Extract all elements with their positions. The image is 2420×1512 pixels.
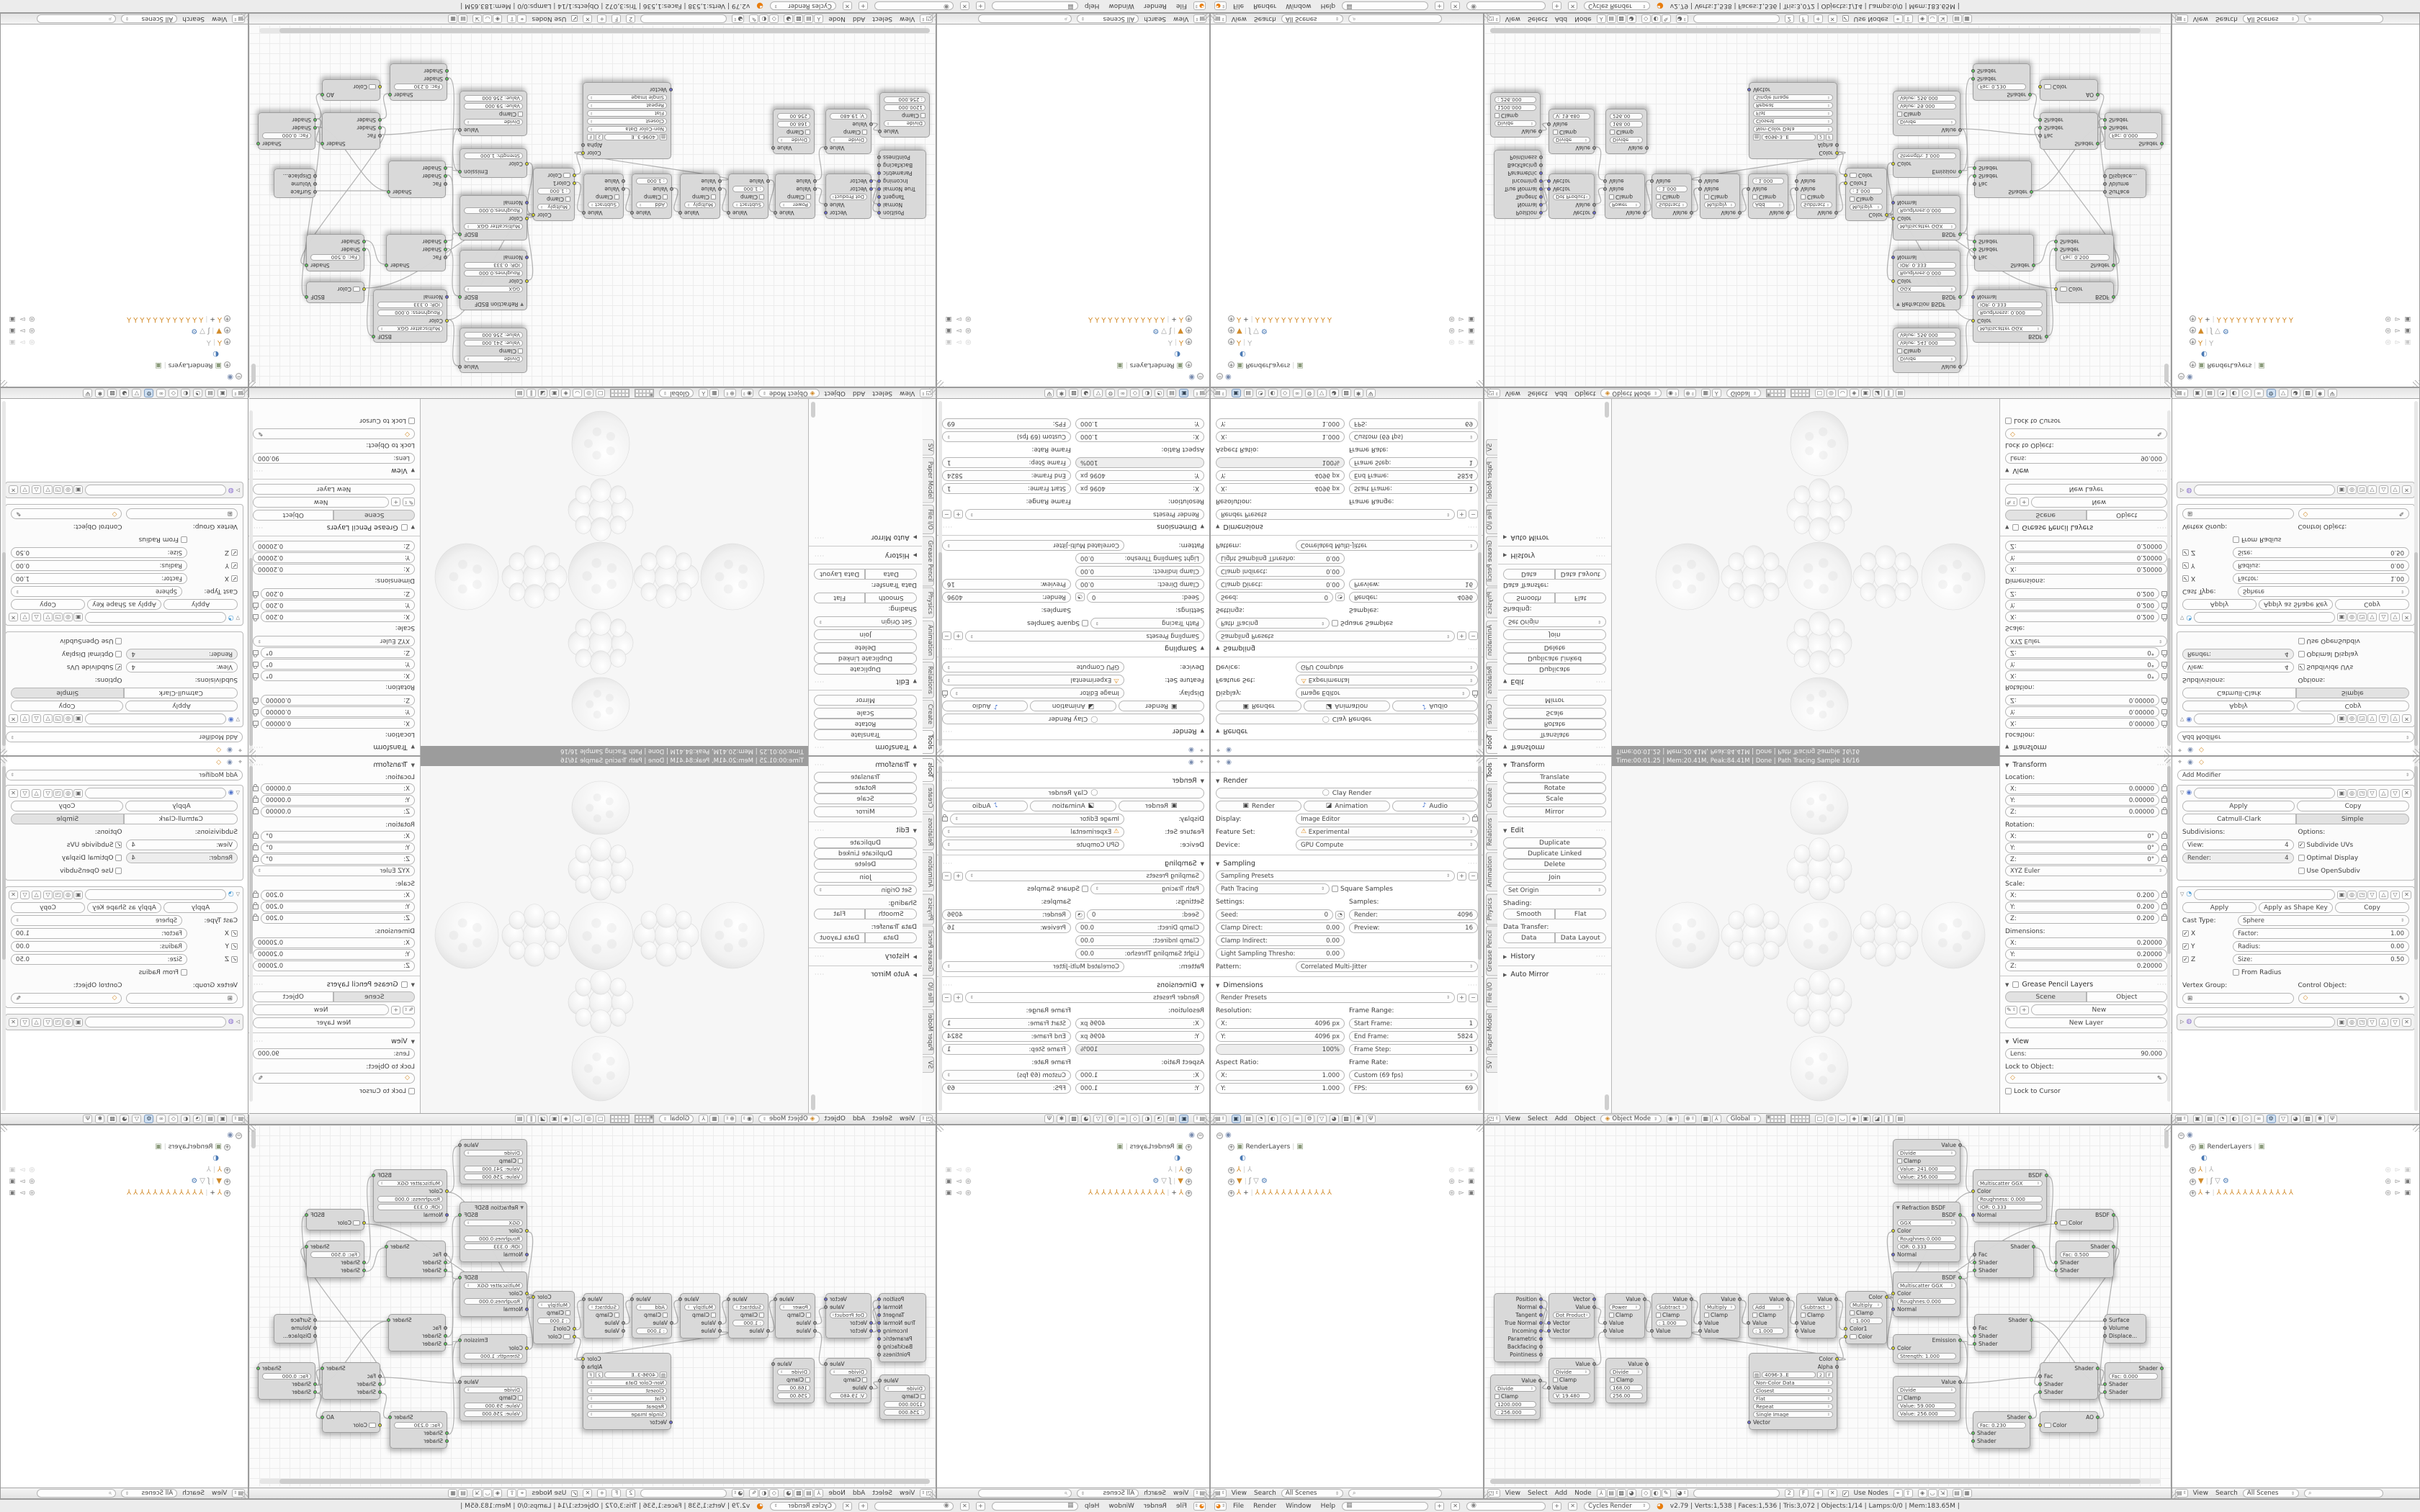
editor-type-select[interactable]: ▤: [1193, 14, 1206, 23]
color-swatch[interactable]: [353, 287, 360, 292]
input-socket[interactable]: [1971, 1439, 1975, 1443]
context-icon[interactable]: ◉: [227, 746, 233, 752]
layer-toggle[interactable]: [650, 393, 653, 397]
node-value-field[interactable]: Value: 256.000: [464, 1174, 523, 1180]
input-socket[interactable]: [525, 1292, 529, 1295]
context-icon[interactable]: ◉: [1226, 746, 1232, 752]
outliner-search-field[interactable]: ⌕: [1348, 1489, 1442, 1498]
menu-view[interactable]: View: [900, 390, 915, 397]
select-toggle[interactable]: ▻: [2396, 338, 2401, 346]
layer-toggle[interactable]: [614, 1119, 618, 1122]
clamp-indirect-field[interactable]: Clamp Indirect:0.00: [1216, 935, 1345, 946]
delete-modifier-button[interactable]: ✕: [2402, 613, 2411, 622]
output-socket[interactable]: [581, 1357, 585, 1361]
input-socket[interactable]: [2103, 118, 2107, 122]
editor-type-select[interactable]: ▤: [1214, 1115, 1227, 1123]
node-dropdown[interactable]: Subtract: [732, 1304, 764, 1310]
node-vscrollbar[interactable]: [251, 1130, 256, 1148]
node-header-icon-hdr_ics4-1[interactable]: ◡: [483, 1489, 492, 1498]
node-dropdown[interactable]: Multiply: [537, 1302, 570, 1308]
loc-x-field[interactable]: X:0.00000: [2005, 783, 2159, 794]
shelf-tab-sv[interactable]: SV: [923, 439, 935, 456]
editmode-toggle-icon[interactable]: ▽: [43, 715, 53, 724]
data-layout-button[interactable]: Data Layout: [814, 932, 866, 943]
editor-type-select[interactable]: ▤: [2175, 389, 2188, 397]
menu-help[interactable]: Help: [1321, 1503, 1336, 1510]
hide-toggle[interactable]: ◎: [2385, 1166, 2391, 1174]
end-frame-field[interactable]: End Frame:5824: [942, 470, 1071, 481]
shader-node[interactable]: VectorValueDot ProductVectorVector: [1549, 174, 1595, 219]
fps-field[interactable]: FPS:69: [942, 418, 1071, 429]
node-header-icon-hdr_ics2-1[interactable]: ◐: [1652, 1489, 1661, 1498]
add-layout-button[interactable]: +: [976, 1502, 985, 1511]
panel-transform-n[interactable]: Transform····: [2005, 742, 2167, 752]
node-dropdown[interactable]: Single Image: [1753, 94, 1833, 101]
node-value-field[interactable]: V: 19.480: [1553, 1392, 1590, 1399]
expand-icon[interactable]: +: [2190, 1179, 2196, 1185]
lock-object-field[interactable]: ◇✎: [253, 1073, 415, 1084]
shader-node[interactable]: BSDFMultiscatter GGXColorRoughness: 0.00…: [373, 1169, 447, 1223]
node-value-field[interactable]: : 1.000: [732, 1320, 764, 1326]
output-socket[interactable]: [458, 295, 462, 299]
subdiv-render-field[interactable]: Render:4: [2182, 649, 2294, 660]
output-socket[interactable]: [877, 195, 881, 199]
properties-tab-0[interactable]: ▣: [1232, 389, 1241, 397]
collapse-icon[interactable]: −: [1197, 374, 1204, 380]
node-value-field[interactable]: 256.00: [777, 113, 810, 120]
output-socket[interactable]: [256, 1367, 260, 1370]
lock-icon[interactable]: [2161, 904, 2167, 909]
properties-tab-9[interactable]: ▩: [1342, 1115, 1351, 1123]
lock-object-field[interactable]: ◇✎: [2005, 1073, 2167, 1084]
node-value-field[interactable]: Roughnes:0.000: [464, 207, 523, 214]
input-socket[interactable]: [1795, 1329, 1798, 1333]
editor-type-select[interactable]: ▤: [2175, 14, 2188, 23]
lock-cursor-checkbox[interactable]: [408, 1088, 415, 1094]
dim-z-field[interactable]: Z:0.20000: [2005, 960, 2167, 971]
output-socket[interactable]: [877, 1305, 881, 1309]
delete-button[interactable]: Delete: [1503, 859, 1606, 870]
output-socket[interactable]: [877, 1297, 881, 1301]
gp-new-layer-button[interactable]: New Layer: [2005, 1017, 2167, 1028]
shader-node[interactable]: Refraction BSDFBSDFGGXColorRoughnes:0.00…: [460, 250, 527, 310]
layer-toggle[interactable]: [635, 1119, 639, 1122]
menu-view[interactable]: View: [1232, 1490, 1247, 1497]
input-socket[interactable]: [1973, 174, 1976, 178]
output-socket[interactable]: [1592, 146, 1596, 150]
menu-render[interactable]: Render: [1253, 3, 1276, 10]
node-header-icon-hdr_ics1-2[interactable]: ▩: [794, 14, 803, 23]
factor-field[interactable]: Factor:1.00: [2233, 573, 2409, 584]
res-x-field[interactable]: X:4096 px: [1075, 483, 1204, 494]
node-value-field[interactable]: 1200.000: [1494, 104, 1536, 111]
output-socket[interactable]: [877, 171, 881, 175]
collapse-icon[interactable]: −: [236, 374, 242, 380]
data-layout-button[interactable]: Data Layout: [1555, 932, 1607, 943]
shader-node[interactable]: ValueSubtractClamp: 1.000Value: [1652, 1293, 1692, 1338]
factor-field[interactable]: Factor:1.00: [11, 573, 187, 584]
pin-icon[interactable]: ⌖: [238, 746, 242, 752]
output-socket[interactable]: [1958, 1380, 1962, 1384]
layer-toggle[interactable]: [646, 1119, 650, 1122]
preset-add-button[interactable]: +: [1457, 510, 1466, 519]
node-header-icon-hdr_ics4-2[interactable]: ⇲: [472, 14, 482, 23]
hide-toggle[interactable]: ◎: [29, 1178, 35, 1185]
output-socket[interactable]: [2096, 1367, 2099, 1370]
render-samples-field[interactable]: Render:4096: [942, 592, 1071, 603]
properties-tab-9[interactable]: ▩: [2303, 1115, 2313, 1123]
frame-rate-select[interactable]: Custom (69 fps): [942, 431, 1071, 442]
node-checkbox[interactable]: [1897, 348, 1902, 354]
editor-type-select[interactable]: ◳: [1487, 1489, 1500, 1498]
layer-toggle[interactable]: [618, 1119, 622, 1122]
output-socket[interactable]: [878, 130, 882, 133]
properties-tab-1[interactable]: ▤: [1167, 389, 1176, 397]
layer-toggle[interactable]: [642, 1119, 646, 1122]
properties-tab-3[interactable]: ◐: [1142, 1115, 1152, 1123]
frame-step-field[interactable]: Frame Step:1: [942, 457, 1071, 468]
output-socket[interactable]: [2030, 190, 2033, 194]
input-socket[interactable]: [670, 187, 673, 191]
node-value-field[interactable]: : 1.000: [636, 178, 668, 184]
output-socket[interactable]: [305, 264, 308, 267]
properties-tab-1[interactable]: ▤: [1167, 1115, 1176, 1123]
layer-toggle[interactable]: [611, 390, 614, 393]
render-toggle[interactable]: ▣: [9, 327, 16, 334]
header-icon-1[interactable]: ◎: [1827, 389, 1836, 397]
clamp-direct-field[interactable]: Clamp Direct:0.00: [1216, 579, 1345, 590]
catmull-clark-button[interactable]: Catmull-Clark: [2182, 688, 2296, 698]
layer-toggle[interactable]: [642, 393, 646, 397]
layer-toggle[interactable]: [635, 390, 639, 393]
input-socket[interactable]: [670, 1321, 673, 1325]
unlink-material-button[interactable]: ✕: [1828, 14, 1837, 23]
node-value-field[interactable]: Fac: 0.000: [2109, 132, 2158, 139]
users-count[interactable]: 2: [626, 1489, 635, 1498]
aspect-y-field[interactable]: Y:1.000: [1216, 418, 1345, 429]
optimal-display-checkbox[interactable]: [116, 855, 122, 861]
cast-y-checkbox[interactable]: ✓: [2182, 943, 2189, 950]
apply-button[interactable]: Apply: [2182, 902, 2257, 913]
viewport[interactable]: Time:00:01.25 | Mem:20.41M, Peak:84.41M …: [1612, 757, 1999, 1115]
shader-node[interactable]: SurfaceVolumeDisplace...: [2105, 1314, 2146, 1344]
integrator-select[interactable]: Path Tracing: [1090, 883, 1204, 894]
input-socket[interactable]: [1973, 248, 1976, 251]
scale-x-field[interactable]: X:0.200: [261, 890, 415, 901]
input-socket[interactable]: [869, 1329, 873, 1333]
device-select[interactable]: GPU Compute: [1296, 840, 1478, 850]
translate-button[interactable]: Translate: [814, 729, 917, 740]
modifier-name-field[interactable]: [85, 485, 226, 495]
duplicate-linked-button[interactable]: Duplicate Linked: [1503, 653, 1606, 664]
node-value-field[interactable]: Value: 59.000: [464, 103, 523, 109]
node-dropdown[interactable]: Multiscatter GGX: [1977, 1180, 2043, 1187]
gp-object-button[interactable]: Object: [253, 510, 334, 521]
hide-toggle[interactable]: ◎: [1449, 315, 1455, 323]
node-checkbox[interactable]: [806, 1313, 811, 1318]
subdivide-uvs-checkbox[interactable]: ✓: [2298, 664, 2305, 670]
shader-node[interactable]: ValueDivideClamp1200.000: 256.000: [1490, 1374, 1541, 1420]
node-dropdown[interactable]: Multiply: [537, 204, 570, 210]
node-value-field[interactable]: Fac: 0.500: [310, 254, 360, 261]
outliner-row[interactable]: +⅄+|⅄⅄⅄⅄⅄⅄⅄⅄⅄⅄⅄⅄◎▻▣: [6, 1187, 242, 1199]
output-socket[interactable]: [630, 211, 634, 215]
rotation-mode-select[interactable]: XYZ Euler: [253, 636, 415, 647]
radius-field[interactable]: Radius:0.00: [11, 941, 187, 952]
shader-node[interactable]: ShaderFac: 0.000ShaderShader: [258, 112, 315, 150]
node-dropdown[interactable]: Divide: [777, 137, 810, 143]
output-socket[interactable]: [1539, 156, 1543, 159]
cast-y-checkbox[interactable]: ✓: [2182, 562, 2189, 569]
size-field[interactable]: Size:0.50: [11, 954, 187, 965]
output-socket[interactable]: [1539, 1337, 1543, 1341]
opensubdiv-checkbox[interactable]: [116, 868, 122, 874]
node-header-icon-hdr_ics1-0[interactable]: ⅄: [1597, 1489, 1606, 1498]
output-socket[interactable]: [1834, 211, 1838, 215]
render-button[interactable]: ▣Render: [1216, 701, 1301, 711]
properties-tab-9[interactable]: ▩: [1069, 1115, 1078, 1123]
node-value-field[interactable]: Roughnes:0.000: [1897, 270, 1956, 276]
outliner-row[interactable]: +▼|ʃ▽⚙◎▻▣: [943, 1176, 1204, 1187]
header-icon-3[interactable]: ◈: [1850, 1115, 1859, 1123]
shelf-tab-relations[interactable]: Relations: [923, 662, 935, 698]
select-toggle[interactable]: ▻: [20, 338, 25, 346]
expand-icon[interactable]: +: [1186, 339, 1192, 346]
outliner-row[interactable]: +▼|ʃ▽⚙◎▻▣: [1216, 1176, 1477, 1187]
output-socket[interactable]: [774, 1297, 777, 1301]
expand-icon[interactable]: +: [1186, 1144, 1192, 1151]
menu-view[interactable]: View: [1173, 1490, 1188, 1497]
expand-icon[interactable]: +: [1228, 1190, 1234, 1197]
flat-button[interactable]: Flat: [1555, 909, 1607, 919]
viewport-toggle-icon[interactable]: ◳: [2357, 789, 2367, 798]
preview-samples-field[interactable]: Preview:16: [1349, 579, 1478, 590]
editor-type-select[interactable]: ▤: [1193, 1115, 1206, 1123]
unlink-material-button[interactable]: ✕: [1828, 1489, 1837, 1498]
start-frame-field[interactable]: Start Frame:1: [942, 483, 1071, 494]
input-socket[interactable]: [1891, 162, 1895, 166]
node-value-field[interactable]: Roughness: 0.000: [1977, 1196, 2043, 1202]
node-dropdown[interactable]: Divide: [1897, 119, 1956, 125]
node-dropdown[interactable]: Multiscatter GGX: [464, 1282, 523, 1289]
node-checkbox[interactable]: [1897, 1158, 1902, 1164]
editmode-toggle-icon[interactable]: ▽: [2367, 486, 2377, 495]
screen-layout-field[interactable]: ▦: [1342, 2, 1428, 11]
node-dropdown[interactable]: GGX: [464, 286, 523, 292]
dim-x-field[interactable]: X:0.20000: [2005, 564, 2167, 575]
flat-button[interactable]: Flat: [814, 909, 866, 919]
eye-toggle-icon[interactable]: ◎: [2347, 486, 2357, 495]
properties-tab-10[interactable]: ✱: [95, 1115, 104, 1123]
node-checkbox[interactable]: [614, 194, 619, 199]
shader-node[interactable]: ValueDivideClampValueV: 19.480: [825, 1358, 871, 1403]
input-socket[interactable]: [2103, 174, 2107, 178]
node-value-field[interactable]: : 1.000: [1850, 188, 1883, 194]
node-header-icon-hdr_ics3-0[interactable]: ⌖: [1894, 14, 1903, 23]
render-toggle[interactable]: ▣: [9, 1166, 16, 1174]
lock-icon[interactable]: [942, 690, 948, 696]
cast-y-checkbox[interactable]: ✓: [231, 943, 238, 950]
shelf-tab-grease-pencil[interactable]: Grease Pencil: [1486, 536, 1497, 586]
input-socket[interactable]: [869, 179, 873, 183]
render-toggle[interactable]: ▣: [1468, 315, 1474, 323]
outliner-search-field[interactable]: ⌕: [1348, 14, 1442, 23]
properties-tab-8[interactable]: ◕: [1081, 1115, 1090, 1123]
from-radius-checkbox[interactable]: [181, 969, 187, 976]
render-engine-select[interactable]: Cycles Render: [770, 2, 836, 11]
header-icon-6[interactable]: ‖: [1884, 389, 1894, 397]
node-value-field[interactable]: 168.00: [1610, 121, 1643, 127]
panel-dimensions[interactable]: Dimensions····: [942, 981, 1204, 990]
outliner-row[interactable]: +⅄+|⅄⅄⅄⅄⅄⅄⅄⅄⅄⅄⅄⅄◎▻▣: [6, 313, 242, 325]
image-datablock-field[interactable]: 4096-3..E: [604, 1372, 658, 1378]
properties-tab-8[interactable]: ◕: [2291, 1115, 2300, 1123]
render-toggle[interactable]: ▣: [9, 1178, 16, 1185]
loc-y-field[interactable]: Y:0.00000: [2005, 795, 2159, 806]
subdiv-render-field[interactable]: Render:4: [127, 852, 238, 863]
layer-toggle[interactable]: [618, 393, 622, 397]
render-toggle[interactable]: ▣: [2404, 315, 2411, 323]
shelf-tab-tools[interactable]: Tools: [1486, 730, 1497, 754]
hide-toggle[interactable]: ◎: [29, 315, 35, 323]
image-fake-user[interactable]: F: [587, 1372, 594, 1378]
scale-z-field[interactable]: Z:0.200: [261, 588, 415, 599]
outliner-row[interactable]: +▣RenderLayers|▣: [2178, 1141, 2414, 1153]
output-socket[interactable]: [1539, 1353, 1543, 1356]
input-socket[interactable]: [2054, 240, 2058, 243]
properties-tab-5[interactable]: ∞: [156, 389, 166, 397]
editor-type-select[interactable]: ▤: [232, 1489, 245, 1498]
header-icon-0[interactable]: ▢: [1815, 389, 1824, 397]
cast-type-select[interactable]: Sphere: [11, 586, 182, 597]
render-presets[interactable]: Render Presets: [965, 509, 1204, 520]
node-dropdown[interactable]: Divide: [464, 356, 523, 362]
node-checkbox[interactable]: [1752, 194, 1757, 199]
viewport-toggle-icon[interactable]: ◳: [2357, 1018, 2367, 1027]
outliner-row[interactable]: +⅄+|⅄⅄⅄⅄⅄⅄⅄⅄⅄⅄⅄⅄◎▻▣: [1216, 313, 1477, 325]
header-icon-1[interactable]: ◎: [584, 1115, 593, 1123]
panel-view[interactable]: View····: [253, 1037, 415, 1046]
panel-sampling[interactable]: Sampling····: [942, 859, 1204, 868]
square-samples-checkbox[interactable]: [1332, 886, 1338, 892]
select-toggle[interactable]: ▻: [1459, 327, 1464, 334]
scrollbar[interactable]: [2, 759, 6, 1111]
eye-toggle-icon[interactable]: ◎: [2347, 1018, 2357, 1027]
select-toggle[interactable]: ▻: [1459, 338, 1464, 346]
input-socket[interactable]: [1973, 1253, 1976, 1256]
input-socket[interactable]: [378, 85, 382, 89]
output-socket[interactable]: [1539, 1313, 1543, 1317]
render-toggle[interactable]: ▣: [2404, 1166, 2411, 1174]
pattern-select[interactable]: Correlated Multi-Jitter: [1296, 961, 1478, 972]
render-toggle-icon[interactable]: ▣: [73, 789, 83, 798]
frame-step-field[interactable]: Frame Step:1: [942, 1044, 1071, 1055]
node-checkbox[interactable]: [806, 194, 811, 199]
render-toggle-icon[interactable]: ▣: [73, 486, 83, 495]
scene-field[interactable]: ◉: [1466, 1502, 1546, 1511]
expand-icon[interactable]: +: [224, 1144, 230, 1151]
delete-layout-button[interactable]: ✕: [1451, 1502, 1460, 1511]
opensubdiv-checkbox[interactable]: [116, 638, 122, 644]
lock-icon[interactable]: [2161, 650, 2167, 655]
display-mode-select[interactable]: All Scenes: [121, 1489, 177, 1498]
properties-tab-4[interactable]: ◇: [169, 389, 178, 397]
properties-tab-1[interactable]: ▤: [2205, 1115, 2215, 1123]
properties-tab-10[interactable]: ✱: [1057, 1115, 1066, 1123]
lock-icon[interactable]: [253, 916, 259, 921]
expand-icon[interactable]: +: [1186, 328, 1192, 334]
use-nodes-checkbox[interactable]: ✓: [571, 16, 578, 22]
menu-help[interactable]: Help: [1085, 1503, 1100, 1510]
properties-tab-9[interactable]: ▩: [1069, 389, 1078, 397]
loc-z-field[interactable]: Z:0.00000: [2005, 806, 2159, 817]
properties-tab-8[interactable]: ◕: [1330, 389, 1339, 397]
pivot-select[interactable]: ⊕: [1684, 389, 1696, 397]
output-socket[interactable]: [1539, 1345, 1543, 1349]
input-socket[interactable]: [2054, 248, 2058, 251]
input-socket[interactable]: [313, 118, 317, 122]
node-value-field[interactable]: : 1.000: [537, 188, 570, 194]
node-dropdown[interactable]: Dot Product: [830, 1312, 867, 1318]
input-socket[interactable]: [378, 1390, 382, 1394]
delete-scene-button[interactable]: ✕: [1568, 2, 1577, 11]
properties-tab-3[interactable]: ◐: [181, 389, 190, 397]
editmode-toggle-icon[interactable]: ▽: [43, 1018, 53, 1027]
delete-modifier-button[interactable]: ✕: [9, 789, 18, 798]
input-socket[interactable]: [525, 201, 529, 204]
manipulator-icon[interactable]: ▦: [709, 389, 719, 397]
scale-y-field[interactable]: Y:0.200: [2005, 901, 2159, 912]
node-header-icon-hdr_ics3-1[interactable]: ⇧: [1904, 14, 1913, 23]
duplicate-linked-button[interactable]: Duplicate Linked: [814, 848, 917, 859]
hide-toggle[interactable]: ◎: [29, 327, 35, 334]
scale-x-field[interactable]: X:0.200: [2005, 890, 2159, 901]
output-socket[interactable]: [532, 1295, 535, 1299]
menu-add[interactable]: Add: [1555, 390, 1567, 397]
node-value-field[interactable]: Roughnes:0.000: [464, 1236, 523, 1242]
properties-tab-3[interactable]: ◐: [1268, 389, 1278, 397]
input-socket[interactable]: [1973, 1261, 1976, 1264]
smooth-button[interactable]: Smooth: [866, 909, 918, 919]
input-socket[interactable]: [525, 1308, 529, 1311]
node-value-field[interactable]: : 256.000: [1494, 96, 1536, 103]
output-socket[interactable]: [824, 211, 828, 215]
node-header-icon-hdr_ics4-2[interactable]: ⇲: [472, 1489, 482, 1498]
shader-node[interactable]: ShaderFac: 0.500ShaderShader: [306, 234, 364, 271]
move-up-button[interactable]: △: [32, 613, 41, 622]
output-socket[interactable]: [877, 1353, 881, 1356]
shader-node[interactable]: Refraction BSDFBSDFGGXColorRoughnes:0.00…: [1893, 250, 1960, 310]
size-field[interactable]: Size:0.50: [2233, 954, 2409, 965]
panel-auto-mirror[interactable]: Auto Mirror····: [1503, 533, 1606, 542]
move-down-button[interactable]: ▽: [2390, 789, 2400, 798]
input-socket[interactable]: [1747, 187, 1750, 191]
render-presets[interactable]: Render Presets: [1216, 992, 1455, 1003]
lock-icon[interactable]: [2161, 603, 2167, 608]
outliner-row[interactable]: +⅄+|⅄⅄⅄⅄⅄⅄⅄⅄⅄⅄⅄⅄◎▻▣: [943, 313, 1204, 325]
node-value-field[interactable]: Value: 256.000: [1897, 332, 1956, 338]
node-value-field[interactable]: Roughness: 0.000: [377, 310, 443, 316]
properties-tab-7[interactable]: ▽: [132, 389, 141, 397]
node-dropdown[interactable]: Divide: [1610, 137, 1643, 143]
node-value-field[interactable]: Roughness: 0.000: [1977, 310, 2043, 316]
node-header-icon-hdr_ics4-1[interactable]: ◡: [1928, 14, 1937, 23]
input-socket[interactable]: [2103, 1318, 2107, 1322]
add-modifier-select[interactable]: Add Modifier: [2177, 732, 2414, 742]
smooth-button[interactable]: Smooth: [1503, 593, 1555, 603]
node-header-icon-hdr_ics3-0[interactable]: ⌖: [517, 1489, 526, 1498]
add-material-button[interactable]: +: [597, 14, 606, 23]
